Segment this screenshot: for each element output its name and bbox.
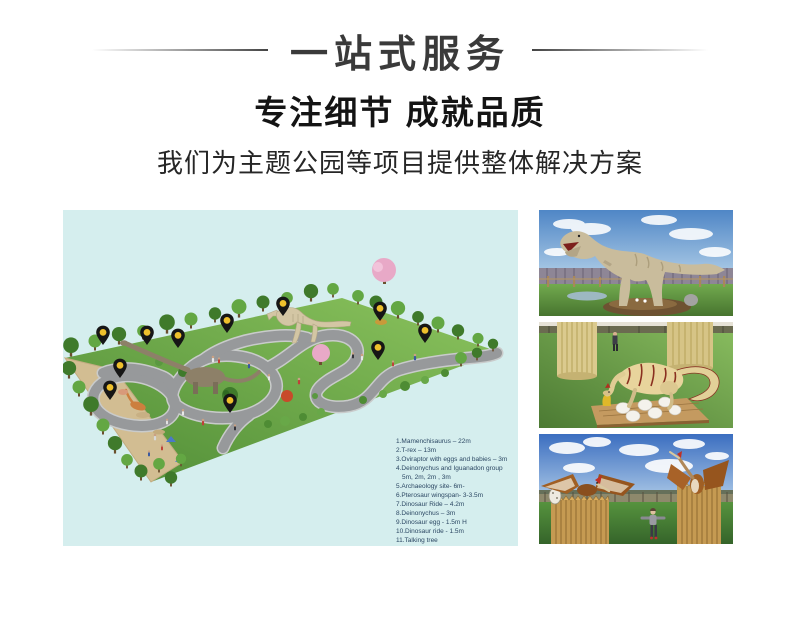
legend-item: 5.Archaeology site- 6m- xyxy=(396,482,521,491)
t-rex-model-photo xyxy=(539,210,733,316)
legend-item: 2.T-rex – 13m xyxy=(396,446,521,455)
section-subheading: 我们为主题公园等项目提供整体解决方案 xyxy=(0,143,800,180)
dinosaur-eggs-photo xyxy=(539,322,733,428)
header-section: 一站式服务 专注细节 成就品质 我们为主题公园等项目提供整体解决方案 xyxy=(0,0,800,180)
section-heading: 专注细节 成就品质 xyxy=(0,86,800,134)
legend-item: 4.Deinonychus and Iguanadon group xyxy=(396,464,521,473)
legend-item: 9.Dinosaur egg - 1.5m H xyxy=(396,518,521,527)
legend-item: 8.Deinonychus – 3m xyxy=(396,509,521,518)
legend-item: 1.Mamenchisaurus – 22m xyxy=(396,437,521,446)
banner-divider-right xyxy=(532,49,708,51)
attractions-legend: 1.Mamenchisaurus – 22m 2.T-rex – 13m 3.O… xyxy=(396,437,521,545)
banner-title: 一站式服务 xyxy=(290,23,510,78)
legend-item: 7.Dinosaur Ride – 4.2m xyxy=(396,500,521,509)
legend-item: 10.Dinosaur ride - 1.5m xyxy=(396,527,521,536)
content-row: 1.Mamenchisaurus – 22m 2.T-rex – 13m 3.O… xyxy=(63,210,800,546)
banner-row: 一站式服务 xyxy=(0,26,800,74)
legend-item: 11.Talking tree xyxy=(396,536,521,545)
wooden-enclosure-left xyxy=(551,496,609,544)
photo-column xyxy=(539,210,733,546)
banner-divider-left xyxy=(92,49,268,51)
pterosaur-photo xyxy=(539,434,733,544)
legend-item: 5m, 2m, 2m , 3m xyxy=(396,473,521,482)
park-map-figure: 1.Mamenchisaurus – 22m 2.T-rex – 13m 3.O… xyxy=(63,210,518,546)
legend-item: 3.Oviraptor with eggs and babies – 3m xyxy=(396,455,521,464)
legend-item: 6.Pterosaur wingspan- 3-3.5m xyxy=(396,491,521,500)
